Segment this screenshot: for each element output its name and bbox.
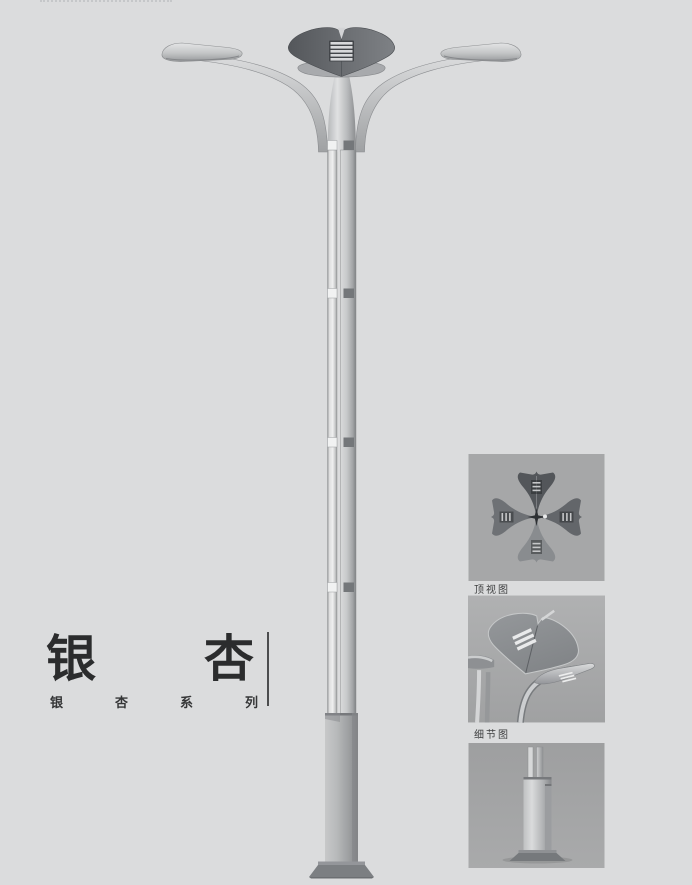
twin-tube-pole: [328, 150, 357, 714]
anchor-base-plate: [309, 862, 374, 879]
base-column-closeup: [524, 777, 552, 853]
catalog-page: 银 杏 银 杏 系 列: [0, 0, 692, 885]
series-subtitle: 银 杏 系 列: [50, 692, 258, 711]
base-column: [325, 713, 358, 865]
canopy-louvers: [329, 41, 354, 62]
series-char-3: 系: [180, 692, 193, 711]
detail-panel-base: [468, 743, 605, 868]
left-lamp-head: [162, 43, 242, 62]
closeup-image: [468, 595, 605, 723]
detail-panel-top-view: [468, 454, 605, 581]
base-image: [468, 743, 605, 868]
top-view-image: [468, 454, 605, 581]
title-char-1: 银: [46, 634, 96, 684]
pole-flare: [328, 70, 357, 152]
detail-panel-closeup: [468, 595, 605, 723]
series-char-1: 银: [50, 692, 63, 711]
series-char-2: 杏: [115, 692, 128, 711]
title-divider-line: [267, 632, 269, 706]
top-view-label: 顶视图: [474, 581, 594, 594]
page-title: 银 杏: [46, 634, 254, 684]
right-lamp-head: [441, 43, 521, 62]
title-block: 银 杏 银 杏 系 列: [46, 626, 272, 712]
closeup-label: 细节图: [474, 726, 594, 739]
series-char-4: 列: [245, 692, 258, 711]
title-char-2: 杏: [204, 634, 254, 684]
